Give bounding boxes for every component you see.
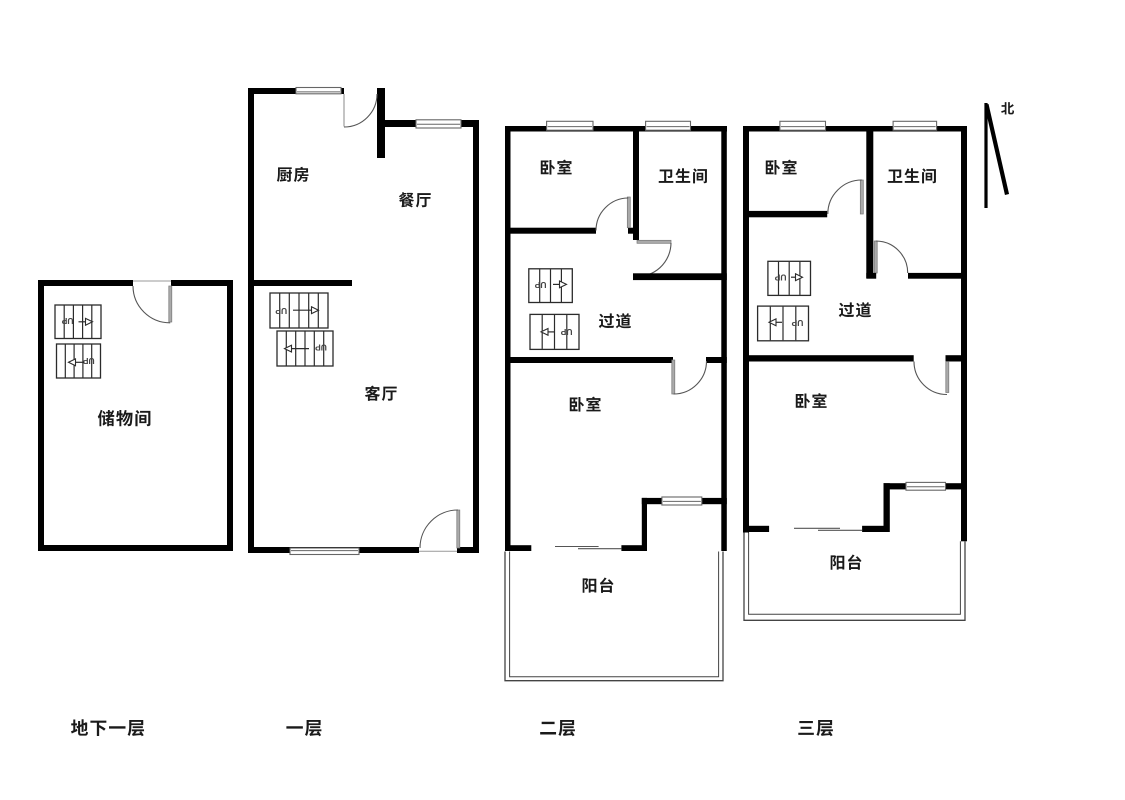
svg-text:UP: UP: [275, 306, 287, 316]
svg-text:UP: UP: [315, 343, 327, 353]
svg-text:UP: UP: [61, 316, 73, 326]
svg-text:UP: UP: [774, 273, 786, 283]
svg-text:UP: UP: [534, 280, 546, 290]
svg-text:UP: UP: [82, 356, 94, 366]
svg-text:UP: UP: [791, 318, 803, 328]
svg-text:UP: UP: [560, 327, 572, 337]
